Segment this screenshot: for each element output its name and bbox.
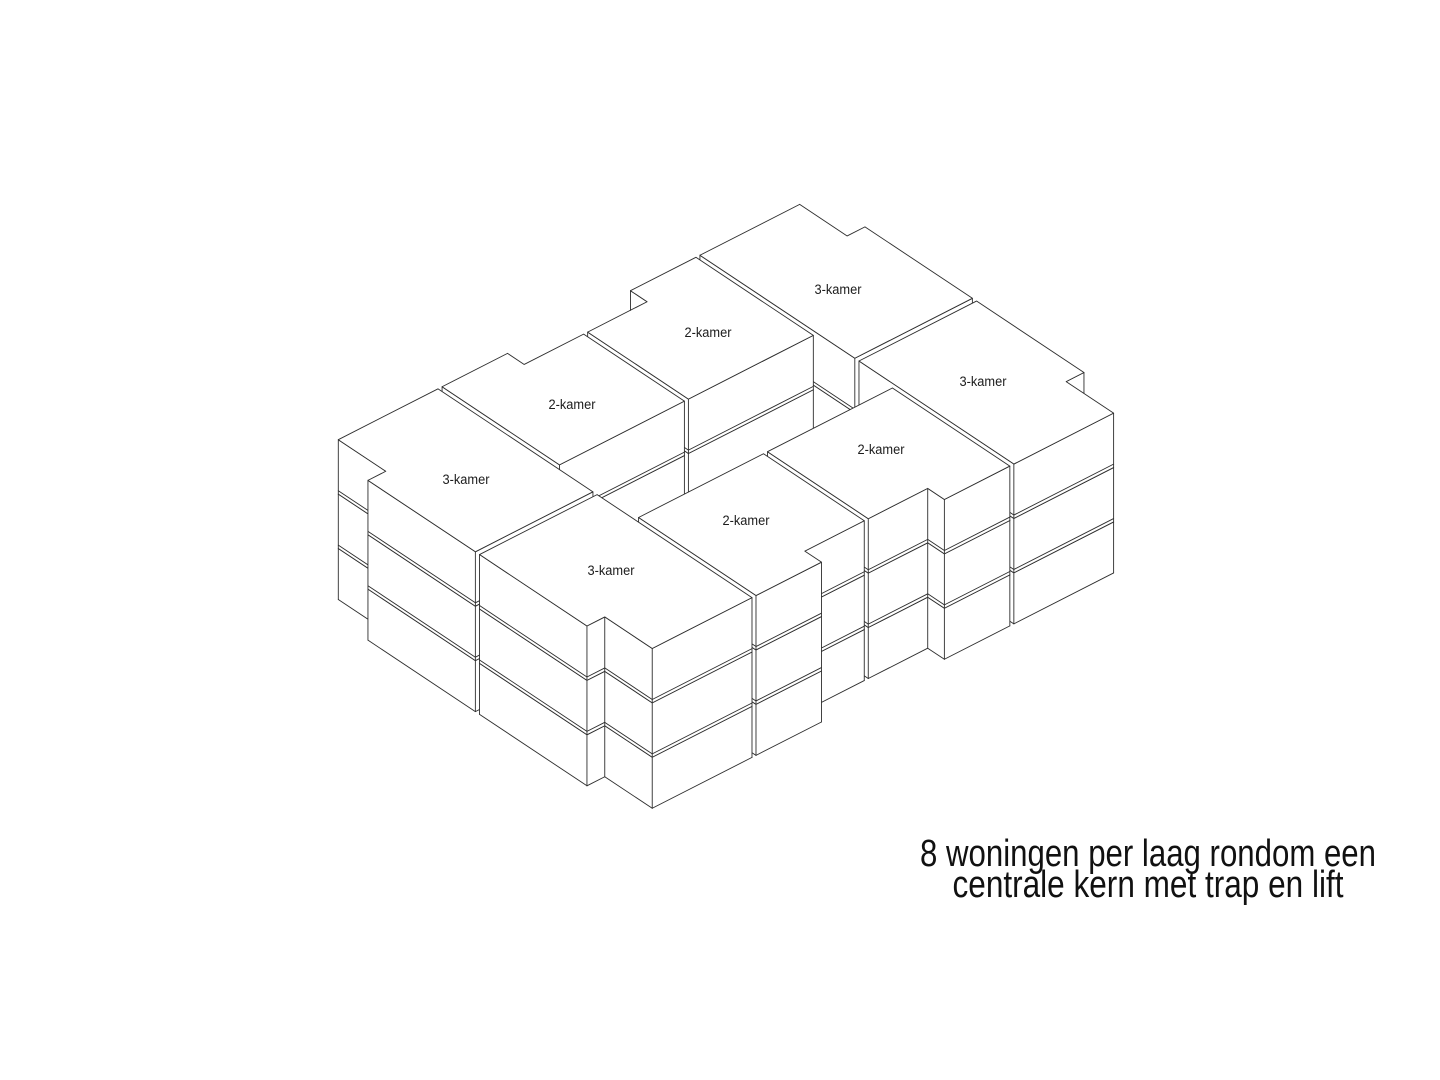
svg-text:2-kamer: 2-kamer bbox=[685, 325, 732, 341]
svg-text:2-kamer: 2-kamer bbox=[723, 513, 770, 529]
svg-text:3-kamer: 3-kamer bbox=[815, 282, 862, 298]
svg-text:centrale kern met trap en lift: centrale kern met trap en lift bbox=[953, 864, 1344, 906]
svg-text:2-kamer: 2-kamer bbox=[549, 397, 596, 413]
svg-text:3-kamer: 3-kamer bbox=[588, 563, 635, 579]
svg-text:3-kamer: 3-kamer bbox=[443, 472, 490, 488]
svg-text:2-kamer: 2-kamer bbox=[858, 442, 905, 458]
svg-text:3-kamer: 3-kamer bbox=[960, 374, 1007, 390]
